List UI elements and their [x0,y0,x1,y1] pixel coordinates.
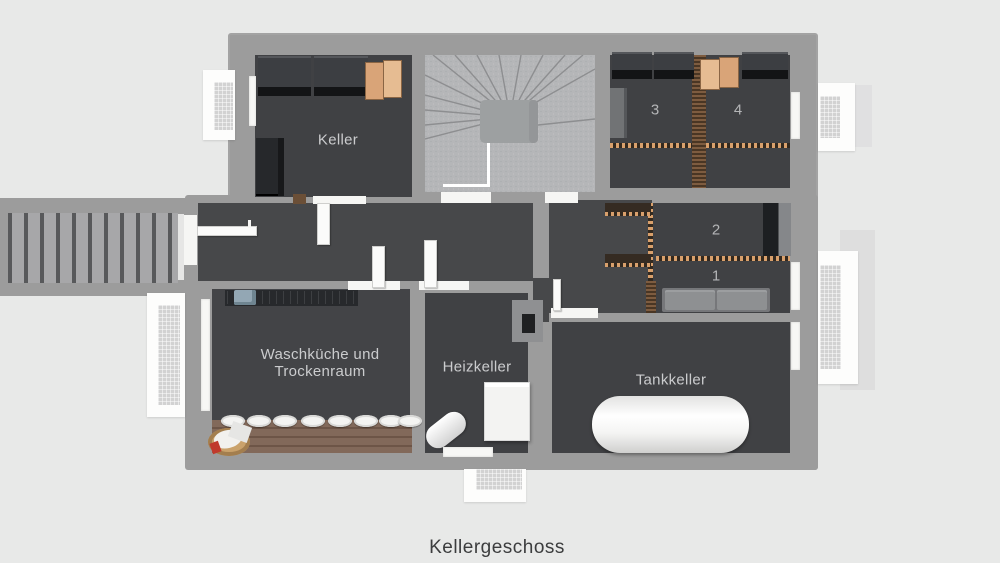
light-well-grate [476,469,522,490]
stair-railing-horizontal [443,184,489,187]
storage-boxes-compartment4 [700,57,739,88]
entry-door-handle [248,220,251,228]
cabinet-keller-left-wall [256,138,284,196]
compartment-label-4: 4 [734,102,742,119]
window-compartment2 [791,262,800,310]
light-well-grate [158,305,180,405]
laundry-tub [354,415,378,427]
storage-box [365,62,384,100]
window-compartment4 [791,92,800,139]
room-label-keller: Keller [318,132,358,149]
staircase-door-threshold-left [441,192,491,203]
sofa-cushion [665,290,715,310]
room-label-heizkeller: Heizkeller [443,359,512,376]
plan-caption: Kellergeschoss [429,537,565,559]
wood-slat-line-4 [706,143,790,148]
keller-door-leaf [317,203,330,245]
room-label-waschkueche-line2: Trockenraum [215,363,425,380]
storage-box [700,59,720,90]
laundry-tub [328,415,352,427]
staircase-door-threshold-right [545,192,578,203]
boiler [484,382,530,441]
staircase-room [425,55,595,192]
storage-box [383,60,402,98]
wood-shelf-edge [605,212,651,216]
compartment-label-1: 1 [712,268,720,285]
entry-door-threshold [184,215,197,265]
waschkueche-door-leaf [372,246,385,288]
wood-slat-line-1-2-horizontal [656,256,790,261]
compartment-label-3: 3 [651,102,659,119]
wood-partition-1-2-end [646,281,656,313]
laundry-tub [247,415,271,427]
light-well-left [147,293,185,417]
cabinet-compartment2 [763,203,791,256]
cabinet-compartment3-2 [654,52,694,79]
heizkeller-door-leaf [424,240,437,288]
cabinet-compartment4 [742,52,788,79]
floor-plan-canvas: Keller Waschküche und Trockenraum Heizke… [0,0,1000,563]
cabinet-compartment3-left-wall [610,88,627,138]
light-well-grate [820,96,840,138]
light-well-grate [214,82,233,130]
window-keller [249,76,256,126]
light-well-right-lower [818,251,858,384]
cabinet-compartment3-1 [612,52,652,79]
light-well-right-upper [818,83,855,151]
sofa-compartment1 [662,288,770,312]
laundry-tub [301,415,325,427]
light-well-grate [820,265,841,369]
light-well-bottom [464,469,526,502]
window-heizkeller [443,447,493,457]
oil-tank [592,396,749,453]
cabinet-keller-2 [314,56,368,96]
light-well-top-left [203,70,235,140]
winder-staircase [425,55,595,192]
room-label-waschkueche-line1: Waschküche und [215,346,425,363]
laundry-basket [208,428,250,456]
exterior-stair-treads [8,213,178,283]
compartment-label-2: 2 [712,222,720,239]
chimney-block [512,300,543,342]
sofa-cushion [717,290,767,310]
hallway-floor [198,203,533,281]
storage-box [719,57,739,88]
laundry-tub [398,415,422,427]
wood-slat-line-3 [610,143,692,148]
wood-shelf-edge [605,263,651,267]
wood-block-hallway [293,194,306,204]
window-waschkueche [201,299,210,411]
laundry-tub [273,415,297,427]
wood-shelf-upper [605,203,651,216]
laundry-machine-item [234,290,256,305]
cabinet-keller-1 [258,56,311,96]
wood-shelf-lower [605,254,651,267]
stair-railing-vertical [487,143,490,187]
room-label-tankkeller: Tankkeller [636,372,707,389]
tankkeller-door-leaf [553,279,561,311]
chimney-flue [522,314,535,333]
window-compartment1 [791,322,800,370]
storage-boxes-keller [365,60,401,98]
room-label-waschkueche: Waschküche und Trockenraum [215,346,425,380]
